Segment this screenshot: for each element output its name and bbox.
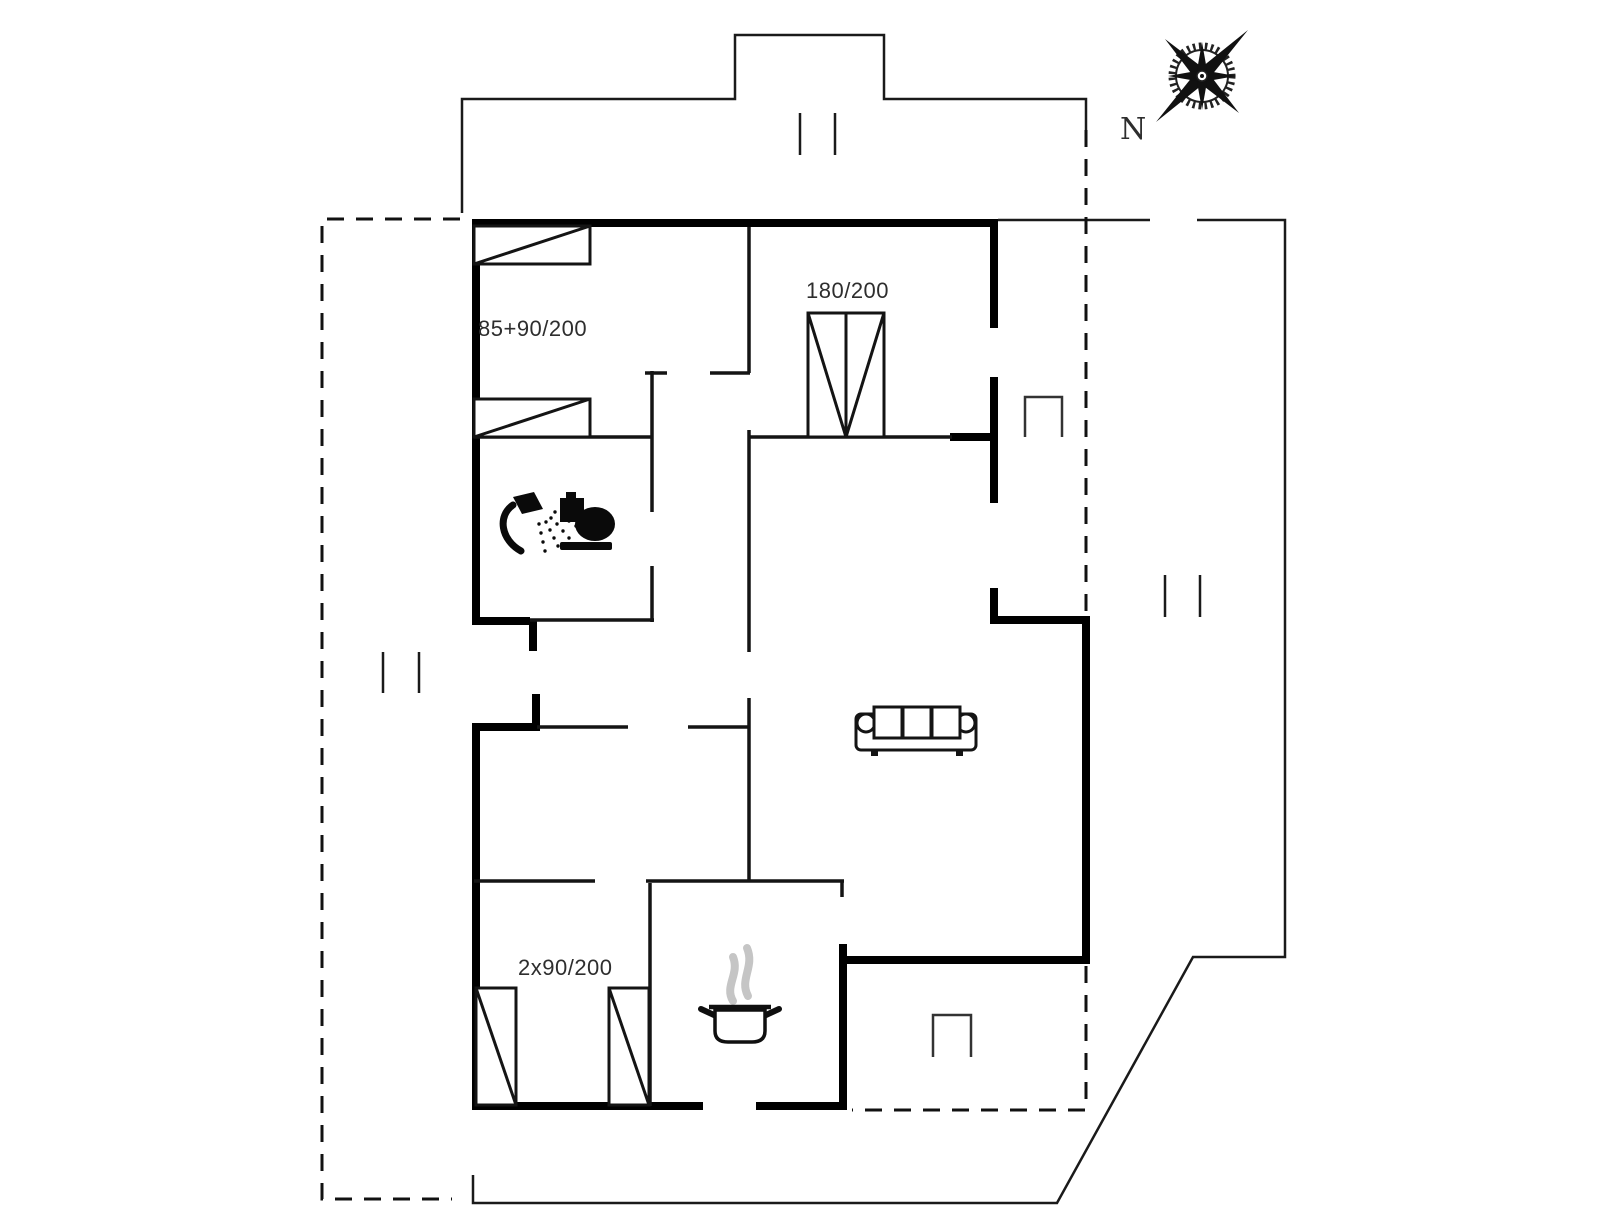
bed-size-label: 85+90/200 — [478, 316, 587, 341]
single-bed-icon — [476, 988, 516, 1105]
steam-squiggle — [745, 948, 749, 996]
roof-outline-top — [462, 35, 1086, 213]
bed-size-label: 2x90/200 — [518, 955, 613, 980]
north-label: N — [1120, 112, 1146, 147]
window-marker-icon-west — [383, 652, 419, 693]
bed-size-label: 180/200 — [806, 278, 889, 303]
window-marker-icon-north — [800, 113, 835, 155]
double-bed-icon — [808, 313, 884, 437]
entrance-recess-walls — [472, 621, 537, 731]
terrace-dashed-left — [322, 219, 460, 1199]
room-bedroom-lower — [476, 988, 649, 1105]
room-bedroom-right — [808, 313, 884, 437]
floor-plan-canvas: 85+90/200 180/200 2x90/200 — [0, 0, 1606, 1205]
door-step-marker-icon-east — [1025, 397, 1062, 437]
stove-pot-icon — [701, 948, 779, 1042]
floor-plan-page: 85+90/200 180/200 2x90/200 — [0, 0, 1606, 1205]
compass-rose-icon — [1156, 30, 1248, 122]
single-bed-icon — [474, 399, 590, 437]
toilet-icon — [560, 492, 615, 550]
single-bed-icon — [474, 226, 590, 264]
door-step-marker-icon-south — [933, 1015, 971, 1057]
single-bed-icon — [609, 988, 649, 1105]
window-marker-icon-east — [1165, 575, 1200, 617]
steam-squiggle — [730, 957, 735, 1001]
sofa-icon — [856, 707, 976, 756]
